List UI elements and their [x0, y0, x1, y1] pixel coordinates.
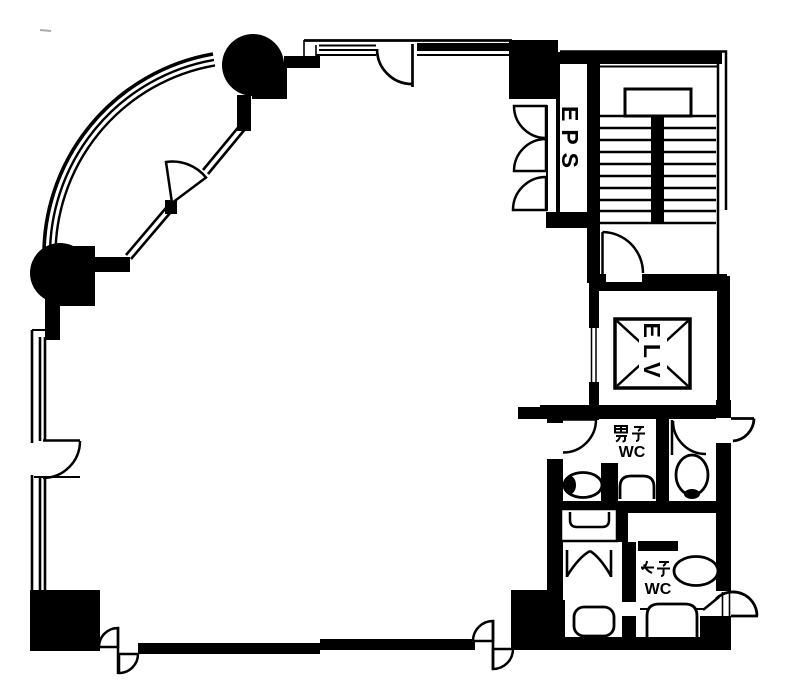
svg-text:WC: WC [645, 581, 672, 598]
svg-text:WC: WC [619, 444, 646, 461]
svg-text:ELV: ELV [639, 322, 665, 383]
svg-text:EPS: EPS [557, 106, 583, 176]
